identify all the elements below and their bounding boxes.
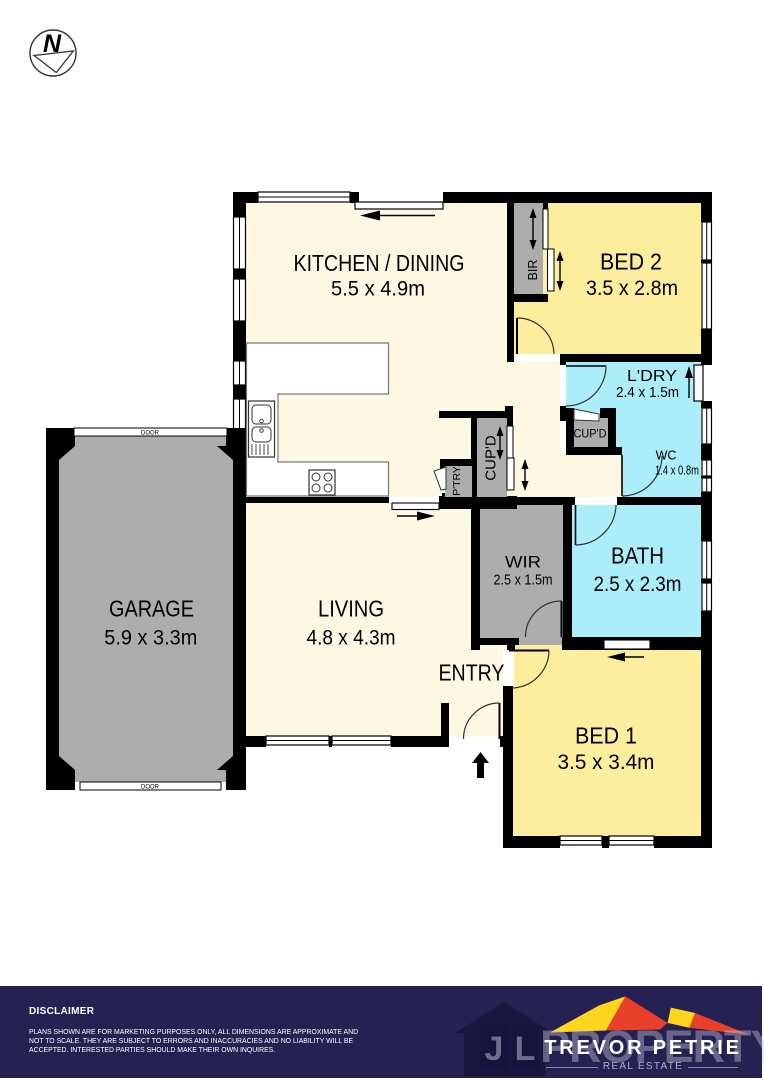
svg-text:BIR: BIR bbox=[526, 260, 540, 281]
svg-text:4.8 x 4.3m: 4.8 x 4.3m bbox=[307, 627, 396, 650]
svg-text:BED 1: BED 1 bbox=[575, 723, 637, 749]
svg-text:2.5 x 1.5m: 2.5 x 1.5m bbox=[494, 572, 553, 589]
svg-text:L'DRY: L'DRY bbox=[627, 368, 677, 385]
svg-text:WIR: WIR bbox=[505, 554, 541, 572]
svg-text:P'TRY: P'TRY bbox=[451, 466, 463, 496]
svg-text:3.5 x 3.4m: 3.5 x 3.4m bbox=[558, 751, 655, 774]
svg-text:BED 2: BED 2 bbox=[600, 249, 662, 275]
svg-text:LIVING: LIVING bbox=[318, 596, 384, 622]
svg-text:DOOR: DOOR bbox=[141, 785, 160, 791]
svg-text:CUP'D: CUP'D bbox=[574, 427, 607, 441]
svg-text:5.9 x 3.3m: 5.9 x 3.3m bbox=[104, 627, 197, 650]
svg-text:GARAGE: GARAGE bbox=[109, 596, 194, 622]
svg-text:5.5 x 4.9m: 5.5 x 4.9m bbox=[331, 278, 425, 301]
svg-text:KITCHEN / DINING: KITCHEN / DINING bbox=[294, 250, 465, 276]
svg-text:BATH: BATH bbox=[611, 543, 664, 569]
svg-text:1.4 x 0.8m: 1.4 x 0.8m bbox=[655, 464, 699, 478]
svg-text:CUP'D: CUP'D bbox=[483, 435, 500, 481]
svg-text:WC: WC bbox=[656, 449, 677, 463]
svg-text:2.4 x 1.5m: 2.4 x 1.5m bbox=[616, 384, 679, 401]
svg-text:2.5 x 2.3m: 2.5 x 2.3m bbox=[594, 573, 682, 596]
svg-text:DOOR: DOOR bbox=[141, 431, 160, 437]
svg-text:ENTRY: ENTRY bbox=[439, 660, 505, 686]
svg-text:3.5 x 2.8m: 3.5 x 2.8m bbox=[586, 277, 678, 300]
